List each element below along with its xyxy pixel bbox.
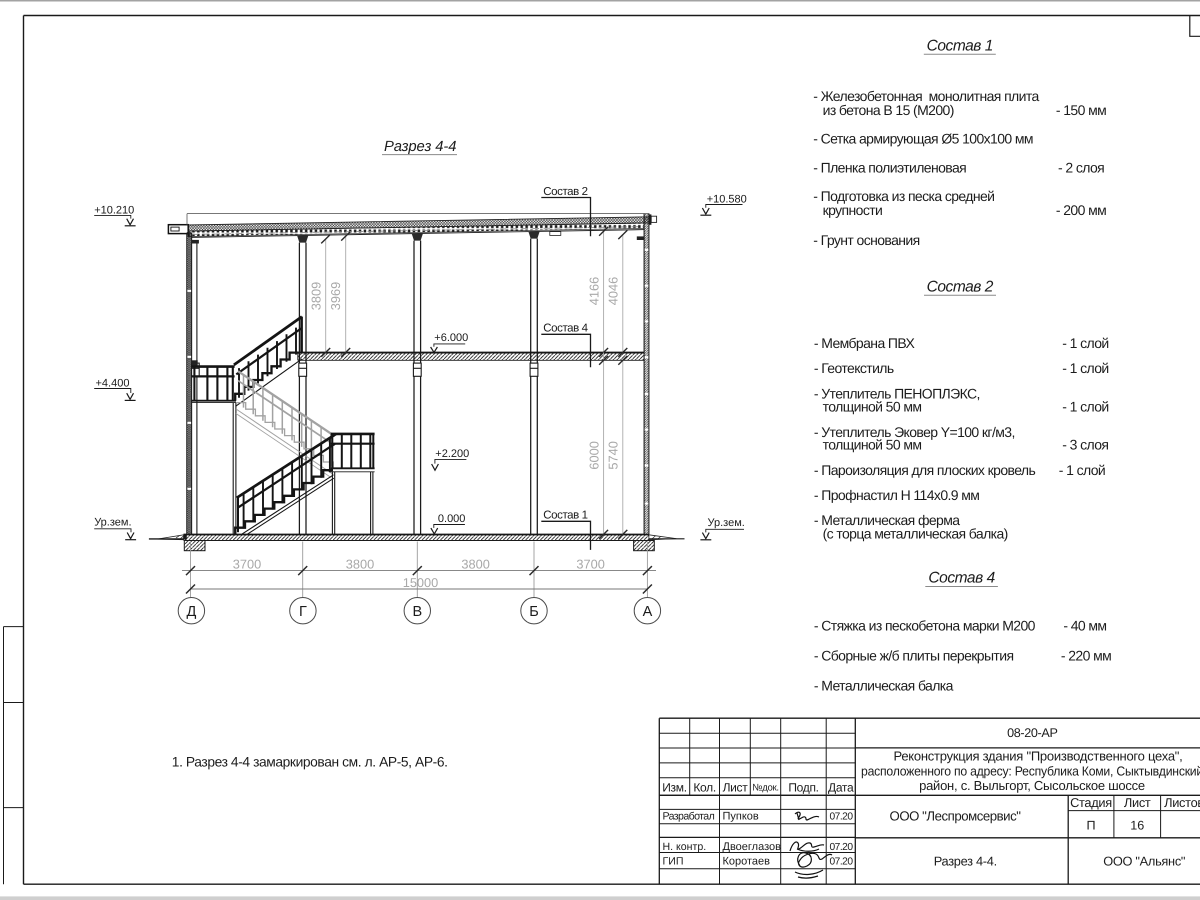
svg-text:Листов: Листов [1164, 795, 1200, 810]
svg-text:В: В [412, 604, 422, 620]
svg-text:из бетона В 15 (М200): из бетона В 15 (М200) [823, 102, 954, 118]
svg-text:5740: 5740 [606, 441, 621, 469]
svg-text:ООО "Леспромсервис": ООО "Леспромсервис" [890, 808, 1022, 823]
svg-text:6000: 6000 [587, 441, 602, 469]
svg-text:Состав 2: Состав 2 [927, 278, 994, 295]
svg-text:Пупков: Пупков [723, 811, 759, 823]
svg-text:- Металлическая балка: - Металлическая балка [814, 678, 954, 694]
svg-text:3969: 3969 [328, 282, 343, 310]
svg-text:Подп.: Подп. [788, 780, 818, 794]
svg-text:- Профнастил Н 114х0.9 мм: - Профнастил Н 114х0.9 мм [814, 487, 979, 503]
svg-text:ГИП: ГИП [663, 855, 684, 867]
svg-text:- Сборные ж/б плиты перекрытия: - Сборные ж/б плиты перекрытия [814, 648, 1014, 664]
svg-text:1. Разрез 4-4 замаркирован см.: 1. Разрез 4-4 замаркирован см. л. АР-5, … [172, 754, 448, 769]
svg-text:крупности: крупности [823, 202, 883, 218]
svg-text:- 200 мм: - 200 мм [1056, 202, 1106, 218]
svg-text:+10.580: +10.580 [707, 193, 747, 205]
svg-text:- 3 слоя: - 3 слоя [1062, 437, 1108, 453]
svg-text:- Пленка полиэтиленовая: - Пленка полиэтиленовая [813, 160, 966, 176]
svg-text:Двоеглазов: Двоеглазов [723, 841, 782, 853]
svg-text:толщиной 50 мм: толщиной 50 мм [823, 437, 922, 453]
svg-text:ООО "Альянс": ООО "Альянс" [1103, 853, 1185, 868]
svg-text:- Мембрана ПВХ: - Мембрана ПВХ [814, 335, 916, 351]
svg-text:- Сетка армирующая Ø5 100х100: - Сетка армирующая Ø5 100х100 мм [813, 131, 1033, 147]
svg-text:4166: 4166 [587, 277, 602, 305]
svg-text:А: А [643, 604, 653, 620]
svg-text:Кол.: Кол. [693, 780, 716, 794]
svg-text:07.20: 07.20 [830, 842, 854, 853]
svg-text:Ур.зем.: Ур.зем. [708, 517, 745, 529]
svg-text:Состав 1: Состав 1 [543, 510, 588, 522]
svg-text:Разрез 4-4: Разрез 4-4 [384, 139, 456, 155]
svg-text:П: П [1086, 819, 1095, 833]
svg-text:№док.: №док. [752, 782, 779, 793]
svg-text:- 2 слоя: - 2 слоя [1058, 160, 1104, 176]
svg-text:Стадия: Стадия [1070, 795, 1112, 810]
svg-text:Ур.зем.: Ур.зем. [94, 517, 131, 529]
svg-text:Разрез 4-4.: Разрез 4-4. [934, 853, 997, 868]
svg-text:расположенного по адресу: Респ: расположенного по адресу: Республика Ком… [861, 764, 1200, 779]
svg-text:4046: 4046 [606, 277, 621, 305]
svg-text:Д: Д [186, 604, 196, 620]
svg-text:15000: 15000 [403, 575, 439, 590]
svg-text:Лист: Лист [723, 780, 749, 794]
svg-text:08-20-АР: 08-20-АР [1007, 726, 1057, 740]
svg-text:- Геотекстиль: - Геотекстиль [814, 360, 894, 376]
svg-text:- 1 слой: - 1 слой [1062, 398, 1108, 414]
svg-text:+10.210: +10.210 [94, 204, 134, 216]
svg-text:Состав 1: Состав 1 [927, 37, 993, 54]
svg-text:Разработал: Разработал [663, 811, 715, 823]
svg-text:Н. контр.: Н. контр. [663, 841, 707, 853]
svg-text:07.20: 07.20 [830, 812, 854, 823]
svg-text:- 150 мм: - 150 мм [1056, 102, 1106, 118]
svg-text:3800: 3800 [461, 557, 489, 572]
svg-text:+4.400: +4.400 [96, 378, 130, 390]
svg-text:+2.200: +2.200 [435, 448, 469, 460]
svg-text:Реконструкция здания "Производ: Реконструкция здания "Производственного … [893, 749, 1182, 764]
svg-text:Б: Б [529, 604, 539, 620]
svg-text:- 220 мм: - 220 мм [1061, 648, 1111, 664]
svg-text:- Пароизоляция для плоских кро: - Пароизоляция для плоских кровель [814, 462, 1036, 478]
svg-text:3809: 3809 [308, 282, 323, 310]
svg-text:07.20: 07.20 [830, 856, 854, 867]
svg-text:0.000: 0.000 [438, 513, 466, 525]
svg-text:Изм.: Изм. [662, 780, 687, 794]
svg-text:(с торца металлическая балка): (с торца металлическая балка) [823, 525, 1008, 541]
svg-text:Г: Г [299, 604, 307, 620]
svg-text:- 1 слой: - 1 слой [1062, 360, 1108, 376]
svg-text:- 1 слой: - 1 слой [1059, 462, 1105, 478]
svg-text:Дата: Дата [828, 780, 854, 794]
svg-text:- Грунт основания: - Грунт основания [813, 232, 919, 248]
svg-text:- 40 мм: - 40 мм [1063, 618, 1106, 634]
svg-text:+6.000: +6.000 [434, 332, 468, 344]
svg-text:толщиной 50 мм: толщиной 50 мм [823, 398, 922, 414]
svg-text:Состав 4: Состав 4 [928, 570, 995, 587]
svg-text:Коротаев: Коротаев [723, 855, 771, 867]
svg-text:3700: 3700 [576, 557, 604, 572]
svg-text:Состав 4: Состав 4 [543, 323, 588, 335]
svg-text:Состав 2: Состав 2 [543, 186, 588, 198]
svg-text:3800: 3800 [346, 557, 374, 572]
svg-text:Лист: Лист [1124, 795, 1151, 810]
svg-text:- 1 слой: - 1 слой [1062, 335, 1108, 351]
svg-text:- Стяжка из пескобетона марки: - Стяжка из пескобетона марки М200 [814, 618, 1036, 634]
svg-text:район, с. Выльгорт, Сысольское: район, с. Выльгорт, Сысольское шоссе [919, 778, 1145, 793]
svg-text:3700: 3700 [233, 557, 261, 572]
svg-text:16: 16 [1130, 819, 1144, 833]
